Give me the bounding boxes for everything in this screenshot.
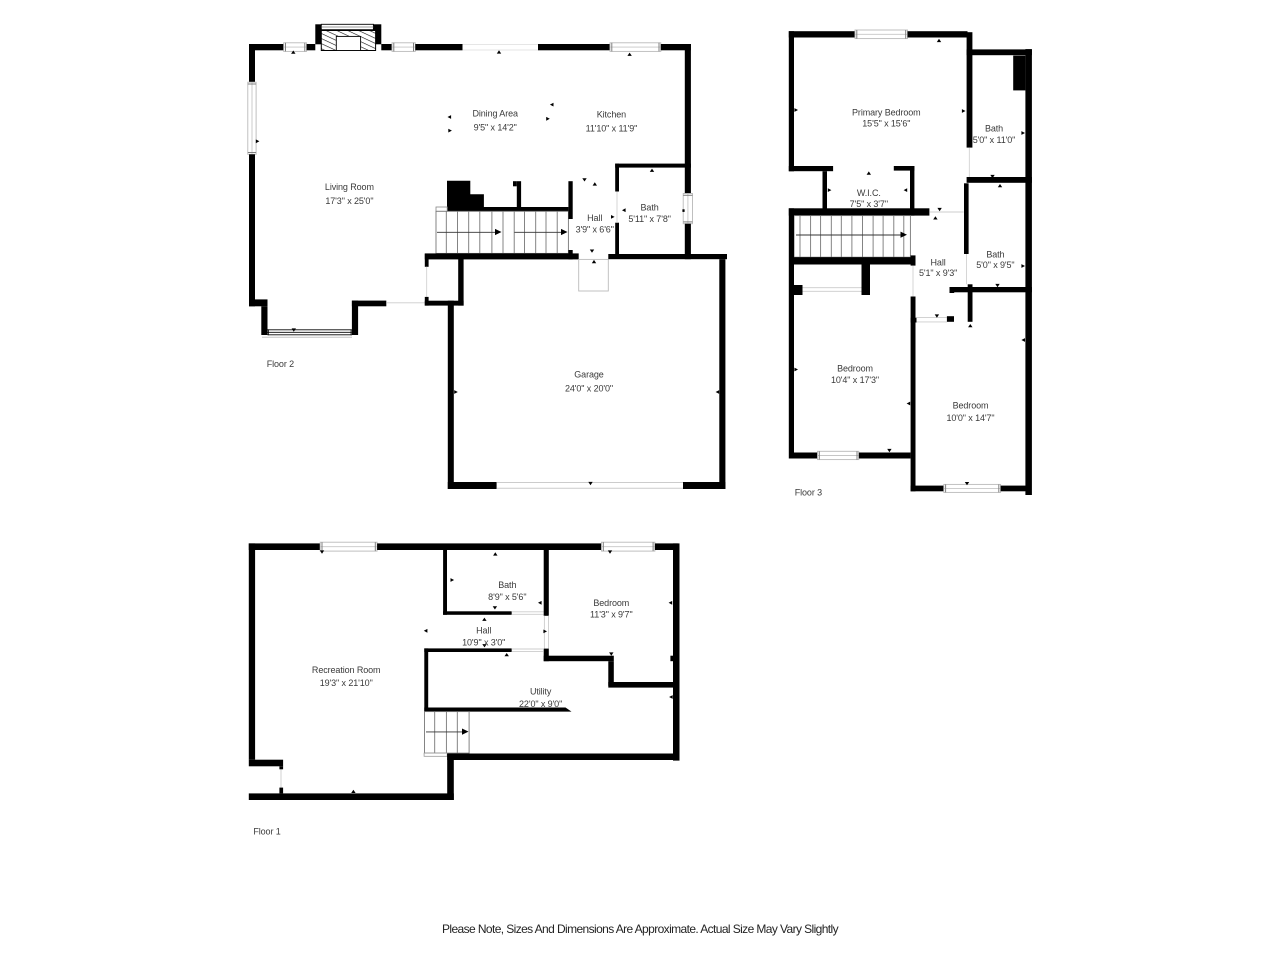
- svg-text:Hall: Hall: [587, 213, 602, 223]
- svg-text:15'5" x 15'6": 15'5" x 15'6": [862, 119, 910, 129]
- svg-text:Bath: Bath: [986, 250, 1004, 260]
- svg-text:17'3" x 25'0": 17'3" x 25'0": [325, 196, 373, 206]
- svg-text:Bath: Bath: [985, 124, 1003, 134]
- svg-text:Bath: Bath: [641, 203, 659, 213]
- svg-text:Primary Bedroom: Primary Bedroom: [852, 107, 921, 117]
- svg-text:11'10" x 11'9": 11'10" x 11'9": [586, 124, 638, 134]
- svg-text:Garage: Garage: [574, 370, 604, 380]
- svg-text:24'0" x 20'0": 24'0" x 20'0": [565, 384, 613, 394]
- svg-text:3'9" x 6'6": 3'9" x 6'6": [576, 225, 614, 235]
- svg-text:Bath: Bath: [498, 580, 516, 590]
- svg-text:Utility: Utility: [530, 687, 552, 697]
- svg-text:5'0" x 11'0": 5'0" x 11'0": [973, 135, 1016, 145]
- svg-text:19'3" x 21'10": 19'3" x 21'10": [320, 678, 373, 688]
- svg-text:9'5" x 14'2": 9'5" x 14'2": [474, 123, 517, 133]
- svg-text:Floor 3: Floor 3: [795, 488, 822, 498]
- svg-text:Hall: Hall: [476, 626, 491, 636]
- svg-text:5'1" x 9'3": 5'1" x 9'3": [919, 268, 957, 278]
- svg-text:Dining Area: Dining Area: [472, 109, 518, 119]
- svg-text:Bedroom: Bedroom: [953, 400, 989, 410]
- svg-text:Living Room: Living Room: [325, 182, 374, 192]
- svg-text:Hall: Hall: [931, 258, 946, 268]
- svg-text:W.I.C.: W.I.C.: [857, 188, 881, 198]
- svg-text:5'11" x 7'8": 5'11" x 7'8": [628, 214, 671, 224]
- svg-text:22'0" x 9'0": 22'0" x 9'0": [519, 699, 562, 709]
- svg-text:5'0" x 9'5": 5'0" x 9'5": [976, 260, 1014, 270]
- svg-text:Bedroom: Bedroom: [837, 363, 873, 373]
- svg-text:11'3" x 9'7": 11'3" x 9'7": [590, 610, 633, 620]
- svg-text:8'9" x 5'6": 8'9" x 5'6": [488, 592, 526, 602]
- svg-text:Kitchen: Kitchen: [597, 110, 626, 120]
- svg-text:Recreation Room: Recreation Room: [312, 665, 381, 675]
- svg-text:7'5" x 3'7": 7'5" x 3'7": [850, 199, 888, 209]
- svg-text:10'9" x 3'0": 10'9" x 3'0": [462, 638, 505, 648]
- svg-text:10'0" x 14'7": 10'0" x 14'7": [946, 413, 994, 423]
- svg-text:Bedroom: Bedroom: [593, 598, 629, 608]
- svg-text:Please Note, Sizes And Dimensi: Please Note, Sizes And Dimensions Are Ap…: [442, 922, 839, 936]
- svg-text:Floor 1: Floor 1: [253, 827, 280, 837]
- svg-text:10'4" x 17'3": 10'4" x 17'3": [831, 375, 879, 385]
- svg-text:Floor 2: Floor 2: [267, 359, 294, 369]
